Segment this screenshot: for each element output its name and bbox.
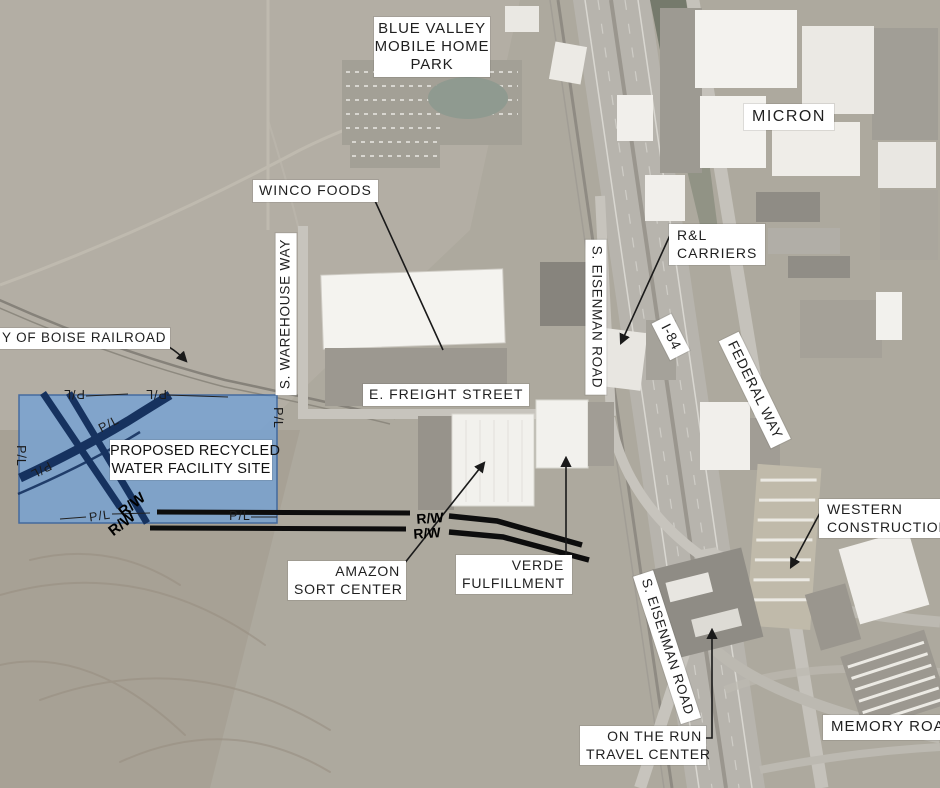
property-line-marker: P/L [63, 387, 85, 401]
label-city-of-boise-railroad: Y OF BOISE RAILROAD [0, 328, 170, 349]
property-line-marker: P/L [14, 445, 28, 467]
label-proposed-site: PROPOSED RECYCLED WATER FACILITY SITE [110, 440, 272, 480]
right-of-way-marker: R/W [413, 524, 441, 542]
label-winco-foods: WINCO FOODS [253, 180, 378, 202]
site-map: BLUE VALLEY MOBILE HOME PARK MICRON WINC… [0, 0, 940, 788]
label-s-warehouse-way: S. WAREHOUSE WAY [276, 233, 297, 395]
label-blue-valley-mobile-home-park: BLUE VALLEY MOBILE HOME PARK [374, 17, 490, 77]
property-line-marker: P/L [271, 407, 285, 429]
property-line-marker: P/L [229, 509, 251, 523]
label-rl-carriers: R&L CARRIERS [669, 224, 765, 265]
label-micron: MICRON [744, 104, 834, 130]
label-western-construction: WESTERN CONSTRUCTION [819, 499, 940, 538]
label-memory-road: MEMORY ROAD [823, 715, 940, 740]
label-s-eisenman-road-north: S. EISENMAN ROAD [586, 240, 607, 395]
property-line-marker: P/L [145, 387, 167, 401]
label-verde-fulfillment: VERDE FULFILLMENT [456, 555, 572, 594]
label-on-the-run-travel-center: ON THE RUN TRAVEL CENTER [580, 726, 706, 765]
label-e-freight-street: E. FREIGHT STREET [363, 384, 529, 406]
property-line-marker: P/L [88, 508, 112, 525]
label-amazon-sort-center: AMAZON SORT CENTER [288, 561, 406, 600]
